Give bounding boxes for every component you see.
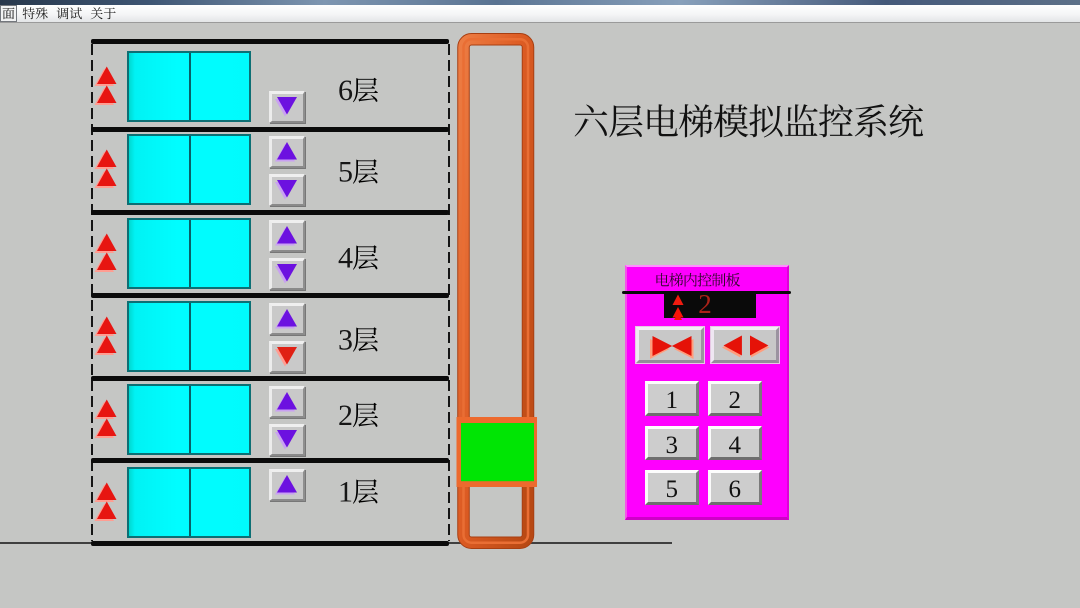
svg-text:4: 4 (338, 242, 353, 275)
svg-text:6: 6 (338, 74, 353, 107)
svg-text:2: 2 (338, 399, 353, 432)
svg-text:1: 1 (338, 476, 353, 509)
svg-text:3: 3 (338, 324, 353, 357)
svg-text:5: 5 (338, 156, 353, 189)
